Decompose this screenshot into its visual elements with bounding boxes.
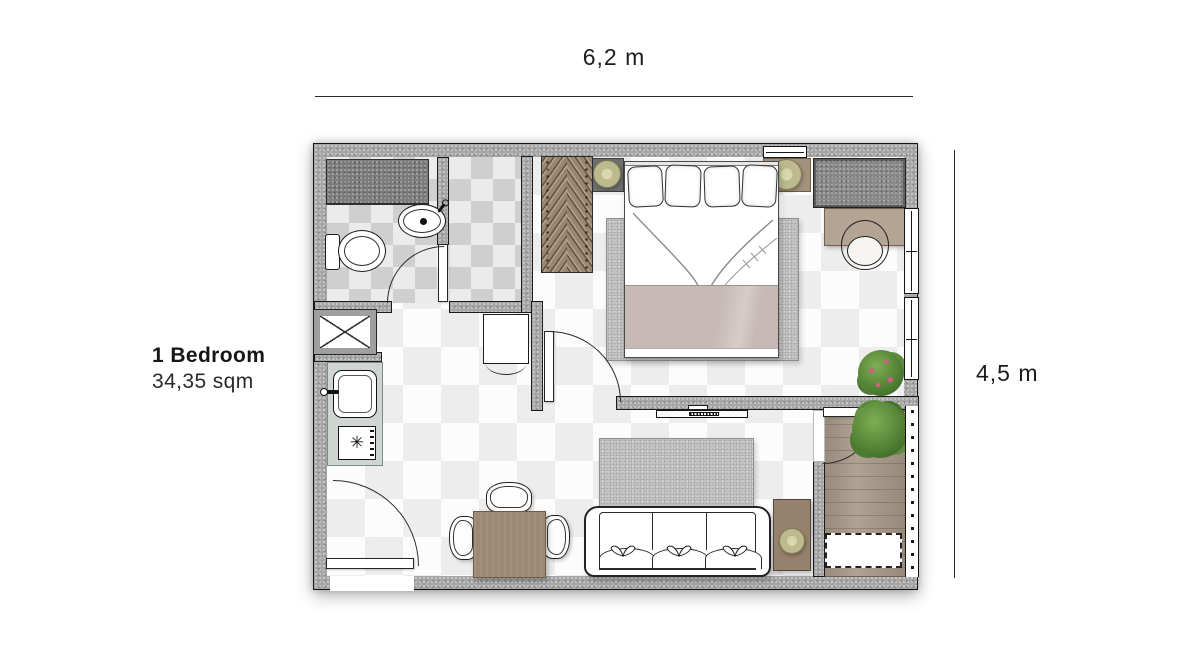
bedroom-window-1: [904, 208, 919, 294]
sofa-divider: [652, 512, 653, 550]
sofa-leaf-decor: [610, 538, 636, 558]
table-lamp: [779, 528, 805, 554]
bedside-lamp-left: [593, 160, 621, 188]
entrance-door-leaf: [326, 558, 414, 569]
plan-title: 1 Bedroom: [152, 344, 265, 368]
kitchen-sink: [333, 370, 377, 418]
refrigerator: [483, 314, 529, 364]
hanger-rail-right: [567, 157, 592, 272]
sofa-backrest-line: [599, 568, 756, 569]
shower: [326, 159, 429, 205]
burner-icon: ✳: [350, 433, 364, 453]
width-dimension-line: [315, 96, 913, 97]
sofa-leaf-decor: [722, 538, 748, 558]
floor-plan: ✳: [313, 143, 918, 590]
top-window: [763, 146, 807, 158]
toilet: [338, 230, 386, 272]
width-dimension-label: 6,2 m: [315, 44, 913, 71]
living-rug: [599, 438, 754, 509]
sofa: [584, 506, 771, 577]
desk-chair-seat: [847, 236, 883, 266]
dining-chair-right: [543, 515, 570, 559]
dining-table: [473, 511, 546, 578]
closet-floor: [449, 157, 521, 303]
pillow: [703, 165, 740, 207]
height-dimension-line: [954, 150, 955, 578]
dining-chair-top: [486, 482, 532, 512]
floorplan-canvas: 6,2 m 4,5 m 1 Bedroom 34,35 sqm ✳: [0, 0, 1181, 664]
service-shaft: [314, 310, 376, 354]
hanger-rail-left: [542, 157, 567, 272]
pillow: [664, 164, 701, 207]
plan-area: 34,35 sqm: [152, 370, 254, 394]
sink-faucet: [326, 390, 339, 394]
pillow: [741, 164, 778, 208]
basin-drain: [420, 218, 427, 225]
entrance-opening: [330, 576, 414, 591]
sofa-divider: [706, 512, 707, 550]
bed-blanket: [625, 285, 778, 349]
wardrobe: [541, 156, 593, 273]
balcony-railing: [905, 406, 919, 577]
bedroom-window-2: [904, 297, 919, 380]
stove: ✳: [338, 426, 376, 460]
balcony-plant: [852, 402, 908, 458]
sofa-leaf-decor: [666, 538, 692, 558]
double-bed: [624, 161, 779, 358]
washbasin: [398, 204, 446, 238]
tv: [656, 410, 748, 418]
hall-wall: [531, 301, 543, 411]
height-dimension-label: 4,5 m: [976, 360, 1039, 387]
wall-cabinet: [813, 158, 906, 208]
tv-base: [689, 412, 719, 416]
bedroom-plant: [858, 350, 904, 396]
balcony-wall: [813, 461, 825, 577]
closet-wall: [521, 156, 533, 313]
desk-chair: [841, 220, 889, 270]
pillow: [627, 165, 664, 208]
washing-machine-space: [825, 533, 902, 568]
stove-knobs: [370, 430, 374, 456]
